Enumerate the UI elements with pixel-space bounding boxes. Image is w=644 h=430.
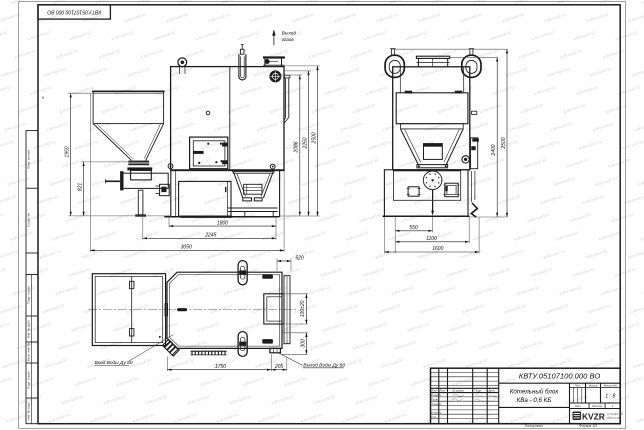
svg-text:Инв. № дубл.: Инв. № дубл. — [27, 320, 31, 339]
svg-text:3050: 3050 — [181, 245, 192, 251]
svg-text:Формат А2: Формат А2 — [579, 424, 597, 428]
svg-text:1600: 1600 — [432, 246, 443, 252]
svg-text:Инв. № подл.: Инв. № подл. — [27, 401, 31, 420]
svg-text:Т.контр.: Т.контр. — [431, 402, 441, 406]
svg-text:газов: газов — [282, 38, 295, 43]
svg-text:Взам. инв. №: Взам. инв. № — [27, 342, 31, 361]
svg-text:2250: 2250 — [302, 137, 308, 149]
svg-text:КВТУ.05107100.000 ВО: КВТУ.05107100.000 ВО — [47, 8, 101, 14]
svg-text:КОТЕЛЬНЫЙ: КОТЕЛЬНЫЙ — [607, 412, 623, 416]
svg-text:Масштаб: Масштаб — [604, 383, 617, 387]
svg-text:821: 821 — [78, 183, 84, 192]
svg-text:ЗАВОД КВ: ЗАВОД КВ — [607, 416, 620, 420]
svg-text:Утв.: Утв. — [431, 415, 437, 419]
svg-text:Перв. примен.: Перв. примен. — [27, 149, 31, 169]
svg-text:205: 205 — [274, 364, 284, 370]
svg-text:520: 520 — [295, 255, 304, 261]
svg-text:1950: 1950 — [65, 146, 71, 157]
svg-text:№ докум.: № докум. — [452, 389, 465, 393]
svg-text:Масса: Масса — [589, 383, 598, 387]
svg-text:в: в — [42, 95, 44, 100]
svg-text:2400: 2400 — [491, 144, 497, 156]
svg-text:Выход: Выход — [282, 30, 297, 36]
svg-text:Изм: Изм — [431, 389, 436, 393]
svg-text:2500: 2500 — [311, 132, 317, 144]
svg-text:Подп.: Подп. — [475, 389, 483, 393]
svg-text:2086: 2086 — [294, 141, 300, 153]
svg-text:1 : 8: 1 : 8 — [605, 394, 615, 400]
svg-text:1750: 1750 — [215, 364, 226, 370]
svg-text:Лит.: Лит. — [575, 383, 581, 387]
svg-text:KVZR: KVZR — [582, 411, 605, 421]
svg-text:100±20: 100±20 — [300, 300, 306, 317]
svg-text:1100: 1100 — [426, 236, 437, 242]
svg-text:Лист: Лист — [575, 404, 582, 408]
svg-text:2245: 2245 — [204, 233, 216, 239]
svg-text:Подп. и дата: Подп. и дата — [27, 286, 31, 304]
svg-text:2500: 2500 — [501, 137, 507, 149]
svg-text:Копировал: Копировал — [525, 424, 543, 428]
svg-text:Подп. и дата: Подп. и дата — [27, 371, 31, 389]
svg-text:Дата: Дата — [489, 389, 496, 393]
svg-text:КВТУ.05107100.000 ВО: КВТУ.05107100.000 ВО — [519, 371, 601, 380]
svg-text:1800: 1800 — [217, 220, 228, 226]
svg-text:550: 550 — [409, 225, 418, 231]
svg-text:Справ. №: Справ. № — [27, 212, 31, 226]
svg-text:КВа - 0,6 КБ: КВа - 0,6 КБ — [517, 397, 552, 404]
svg-text:Лист: Лист — [440, 389, 447, 393]
svg-text:Листов: Листов — [592, 404, 602, 408]
svg-text:300: 300 — [300, 339, 306, 348]
